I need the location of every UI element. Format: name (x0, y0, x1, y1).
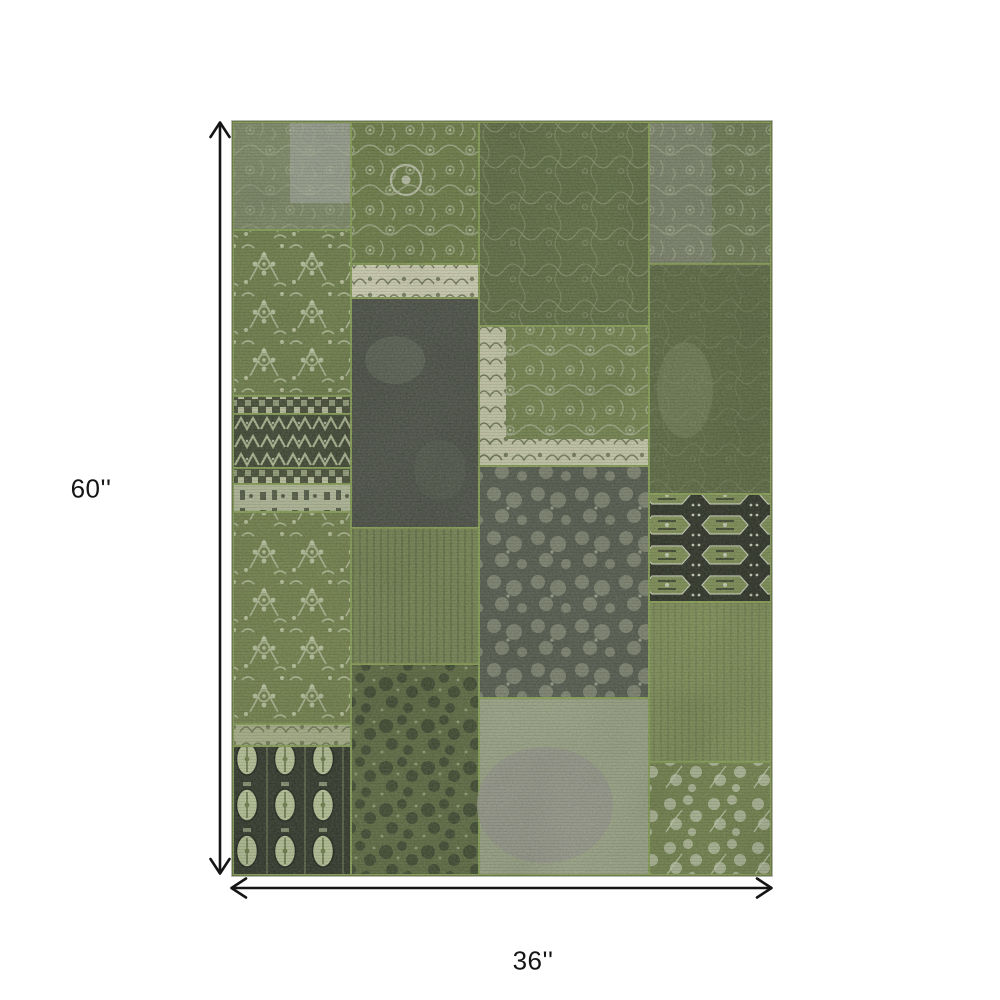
rug-mottle (232, 121, 772, 876)
rug-image (232, 121, 772, 876)
width-dimension-label: 36'' (513, 946, 554, 977)
width-dimension-arrow (232, 879, 772, 898)
figure-canvas (0, 0, 1000, 1000)
product-dimension-figure: 60'' 36'' (0, 0, 1000, 1000)
height-dimension-arrow (211, 123, 230, 874)
height-dimension-label: 60'' (71, 474, 112, 505)
